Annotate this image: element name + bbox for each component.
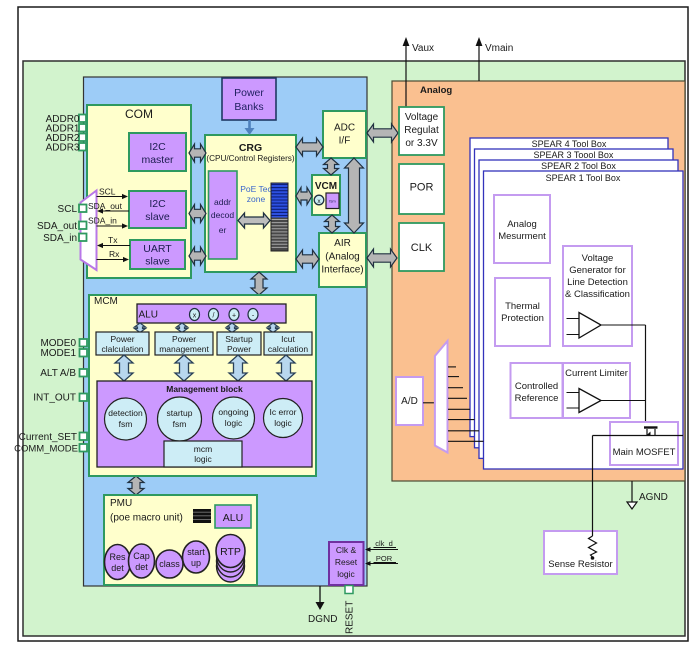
- svg-text:Reference: Reference: [515, 393, 559, 404]
- svg-text:SPEAR 3 Toool Box: SPEAR 3 Toool Box: [534, 150, 614, 160]
- svg-text:Voltage: Voltage: [582, 253, 614, 264]
- svg-text:Main MOSFET: Main MOSFET: [613, 447, 676, 458]
- svg-text:fsm: fsm: [119, 419, 133, 429]
- svg-text:SDA_in: SDA_in: [43, 233, 77, 244]
- svg-text:class: class: [159, 559, 180, 569]
- svg-text:Ic error: Ic error: [270, 407, 297, 417]
- svg-text:zone: zone: [247, 194, 266, 204]
- svg-text:ALU: ALU: [223, 512, 243, 524]
- svg-text:mcm: mcm: [194, 444, 212, 454]
- svg-text:Startup: Startup: [225, 334, 253, 344]
- svg-text:x: x: [193, 313, 197, 320]
- svg-text:Interface): Interface): [321, 265, 363, 276]
- svg-text:Rx: Rx: [109, 249, 120, 259]
- svg-text:clalculation: clalculation: [101, 344, 143, 354]
- svg-text:startup: startup: [167, 408, 193, 418]
- svg-text:ADDR3: ADDR3: [46, 143, 80, 154]
- svg-text:fsm: fsm: [173, 419, 187, 429]
- svg-text:logic: logic: [194, 454, 212, 464]
- svg-text:MCM: MCM: [94, 296, 118, 307]
- svg-text:detection: detection: [108, 408, 143, 418]
- svg-text:Icut: Icut: [281, 334, 295, 344]
- svg-text:start: start: [187, 547, 205, 557]
- svg-text:SPEAR 1 Tool Box: SPEAR 1 Tool Box: [546, 173, 621, 183]
- svg-text:Reset: Reset: [335, 557, 358, 567]
- svg-text:ALU: ALU: [139, 310, 158, 321]
- svg-text:SCL: SCL: [99, 187, 116, 197]
- svg-text:COM: COM: [125, 107, 153, 121]
- svg-text:Voltage: Voltage: [405, 112, 439, 123]
- svg-text:up: up: [191, 558, 201, 568]
- svg-text:SDA_out: SDA_out: [37, 221, 77, 232]
- svg-text:Clk &: Clk &: [336, 545, 357, 555]
- svg-text:VCM: VCM: [315, 181, 337, 192]
- svg-text:COMM_MODE: COMM_MODE: [14, 444, 78, 455]
- svg-text:decod: decod: [211, 210, 234, 220]
- svg-text:POR: POR: [410, 182, 434, 194]
- svg-text:Power: Power: [110, 334, 134, 344]
- svg-text:ADC: ADC: [334, 123, 355, 134]
- svg-text:Vmain: Vmain: [485, 43, 513, 54]
- svg-text:RTP: RTP: [220, 546, 241, 558]
- svg-text:Current_SET: Current_SET: [19, 432, 77, 443]
- svg-text:clk_d: clk_d: [375, 539, 393, 548]
- svg-text:AGND: AGND: [639, 492, 668, 503]
- svg-text:CLK: CLK: [411, 242, 433, 254]
- svg-text:Thermal: Thermal: [505, 301, 540, 312]
- svg-text:SCL: SCL: [58, 204, 78, 215]
- svg-text:ALT A/B: ALT A/B: [40, 368, 76, 379]
- svg-text:AIR: AIR: [334, 238, 351, 249]
- svg-text:/: /: [213, 313, 215, 320]
- svg-text:Power: Power: [234, 87, 264, 99]
- svg-text:slave: slave: [145, 211, 170, 223]
- svg-text:logic: logic: [225, 418, 243, 428]
- svg-text:I2C: I2C: [149, 198, 166, 210]
- svg-text:Regulat: Regulat: [404, 125, 439, 136]
- svg-text:(Analog: (Analog: [325, 252, 359, 263]
- svg-text:UART: UART: [143, 243, 172, 255]
- svg-text:SPEAR 2 Tool Box: SPEAR 2 Tool Box: [541, 161, 616, 171]
- svg-text:logic: logic: [337, 569, 355, 579]
- svg-text:POR: POR: [376, 554, 393, 563]
- svg-text:SDA_out: SDA_out: [88, 201, 123, 211]
- svg-text:Controlled: Controlled: [515, 381, 558, 392]
- svg-text:master: master: [141, 154, 174, 166]
- svg-text:Analog: Analog: [507, 219, 537, 230]
- svg-text:Mesurment: Mesurment: [498, 231, 546, 242]
- svg-text:logic: logic: [274, 418, 292, 428]
- svg-text:I2C: I2C: [149, 141, 166, 153]
- svg-text:fsm: fsm: [329, 199, 336, 204]
- svg-text:+: +: [232, 313, 236, 320]
- svg-text:PMU: PMU: [110, 498, 132, 509]
- svg-text:Analog: Analog: [420, 85, 452, 96]
- svg-text:(CPU/Control Registers): (CPU/Control Registers): [206, 154, 295, 163]
- svg-text:& Classification: & Classification: [565, 289, 630, 300]
- svg-text:CRG: CRG: [239, 142, 262, 154]
- svg-text:slave: slave: [145, 256, 170, 268]
- svg-text:addr: addr: [214, 197, 231, 207]
- svg-text:Protection: Protection: [501, 313, 544, 324]
- svg-text:MODE1: MODE1: [40, 348, 76, 359]
- svg-text:Current Limiter: Current Limiter: [565, 368, 628, 379]
- svg-text:(poe macro unit): (poe macro unit): [110, 513, 183, 524]
- svg-text:Power: Power: [227, 344, 251, 354]
- svg-text:I/F: I/F: [339, 136, 351, 147]
- svg-text:Generator for: Generator for: [569, 265, 626, 276]
- svg-text:Res: Res: [109, 552, 126, 562]
- svg-text:A/D: A/D: [401, 396, 418, 407]
- svg-text:Cap: Cap: [133, 551, 150, 561]
- svg-text:INT_OUT: INT_OUT: [33, 393, 76, 404]
- svg-text:SPEAR 4 Tool Box: SPEAR 4 Tool Box: [532, 139, 607, 149]
- svg-text:Management block: Management block: [166, 384, 243, 394]
- svg-text:PoE Tec: PoE Tec: [240, 184, 272, 194]
- svg-text:Sense Resistor: Sense Resistor: [548, 559, 612, 570]
- svg-text:Power: Power: [172, 334, 196, 344]
- svg-text:or 3.3V: or 3.3V: [405, 138, 438, 149]
- svg-text:det: det: [135, 562, 148, 572]
- svg-text:Banks: Banks: [234, 101, 263, 113]
- svg-text:DGND: DGND: [308, 614, 337, 625]
- svg-text:RESET: RESET: [345, 601, 356, 634]
- svg-text:Tx: Tx: [108, 235, 118, 245]
- svg-text:calculation: calculation: [268, 344, 308, 354]
- svg-text:Line Detection: Line Detection: [567, 277, 628, 288]
- svg-text:er: er: [219, 225, 227, 235]
- svg-text:ongoing: ongoing: [218, 407, 249, 417]
- svg-text:Vaux: Vaux: [412, 43, 434, 54]
- svg-text:SDA_in: SDA_in: [88, 216, 117, 226]
- svg-text:det: det: [111, 563, 124, 573]
- svg-text:management: management: [159, 344, 209, 354]
